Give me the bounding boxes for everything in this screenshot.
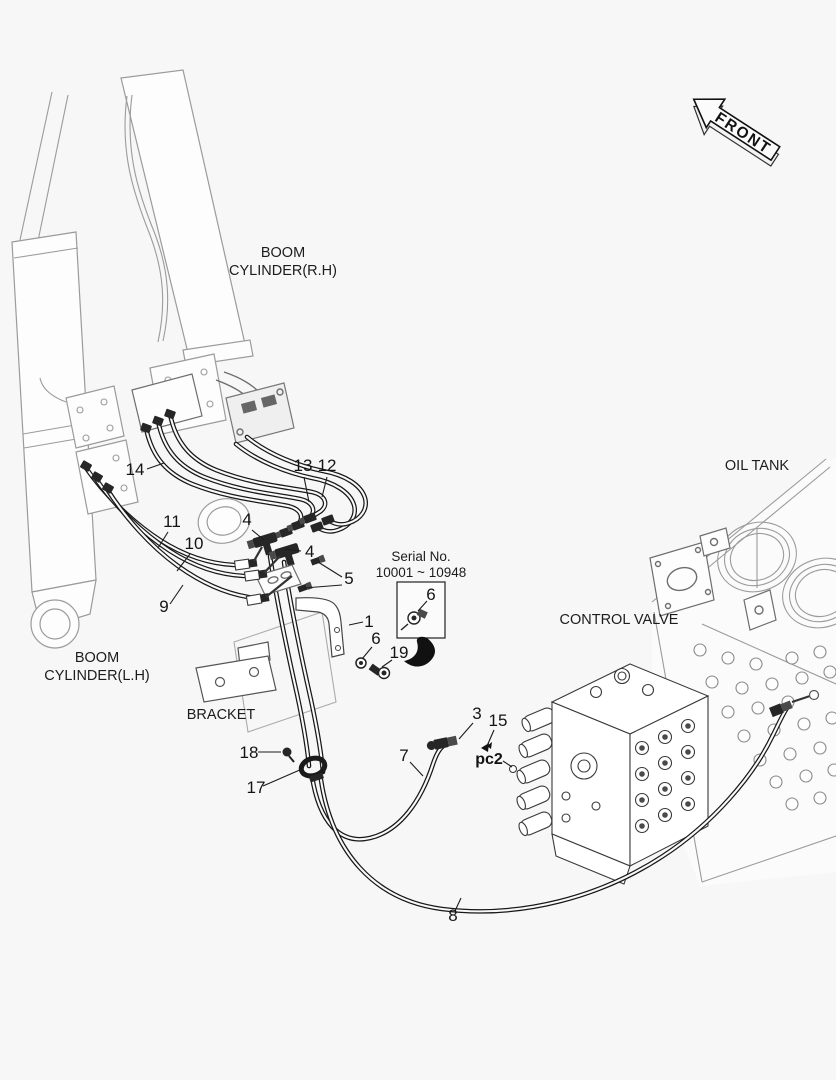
boom-cylinder-lh-label-line1: BOOM bbox=[75, 650, 119, 666]
callout-11: 11 bbox=[163, 512, 181, 531]
callout-12: 12 bbox=[318, 456, 337, 475]
callout-13: 13 bbox=[294, 456, 313, 475]
callout-19: 19 bbox=[390, 643, 409, 662]
boom-cylinder-rh-label-line1: BOOM bbox=[261, 245, 305, 261]
boom-cylinder-rh-label-line2: CYLINDER(R.H) bbox=[229, 263, 337, 279]
callout-4b: 4 bbox=[305, 542, 314, 561]
serial-label-line2: 10001 ~ 10948 bbox=[376, 565, 466, 580]
callout-15: 15 bbox=[489, 711, 508, 730]
control-valve-label: CONTROL VALVE bbox=[560, 612, 679, 628]
parts-diagram-page: FRONT BOOM CYLINDER(R.H) BOOM CYLINDER(L… bbox=[0, 0, 836, 1080]
callout-6-serial: 6 bbox=[426, 585, 435, 604]
bolt-18 bbox=[283, 748, 292, 757]
callout-3: 3 bbox=[472, 704, 481, 723]
port-label-pc2: pc2 bbox=[475, 751, 503, 768]
callout-5: 5 bbox=[344, 569, 353, 588]
serial-label-line1: Serial No. bbox=[391, 549, 450, 564]
callout-8: 8 bbox=[448, 906, 457, 925]
bracket-label: BRACKET bbox=[187, 707, 256, 723]
callout-6: 6 bbox=[371, 629, 380, 648]
callout-7: 7 bbox=[399, 746, 408, 765]
callout-17: 17 bbox=[247, 778, 266, 797]
callout-14: 14 bbox=[126, 460, 145, 479]
boom-piping-diagram: FRONT BOOM CYLINDER(R.H) BOOM CYLINDER(L… bbox=[0, 0, 836, 1080]
callout-10: 10 bbox=[185, 534, 204, 553]
boom-cylinder-lh-label-line2: CYLINDER(L.H) bbox=[44, 668, 150, 684]
callout-18: 18 bbox=[240, 743, 259, 762]
callout-4a: 4 bbox=[242, 510, 251, 529]
callout-9: 9 bbox=[159, 597, 168, 616]
oil-tank-label: OIL TANK bbox=[725, 458, 790, 474]
